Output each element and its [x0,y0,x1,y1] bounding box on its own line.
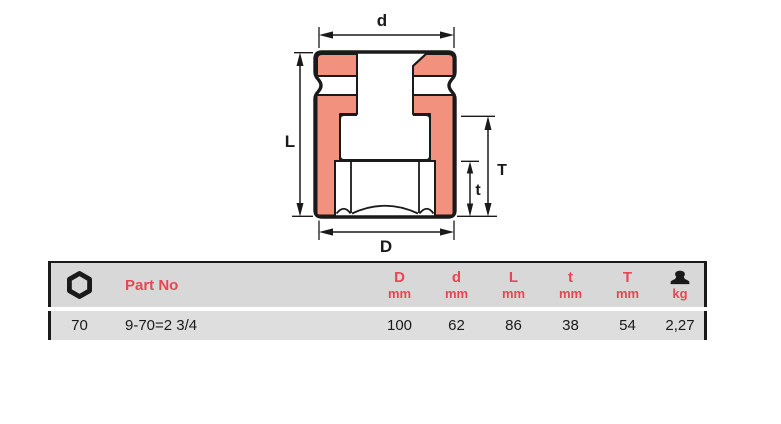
column-unit-T: mm [616,286,639,301]
column-dim-T: T [623,269,632,286]
cell-size: 70 [51,317,108,334]
weight-column-header: kg [656,263,704,307]
size-column-header [51,263,108,307]
cell-part-no: 9-70=2 3/4 [108,317,371,334]
column-header-t: t mm [542,263,599,307]
dim-label-T: T [497,162,507,179]
cell-d: 62 [428,317,485,334]
column-unit-D: mm [388,286,411,301]
dim-label-L: L [285,132,295,151]
dim-label-D: D [380,237,392,256]
cell-weight: 2,27 [656,317,704,334]
column-header-T: T mm [599,263,656,307]
catalog-page: d L D T [0,0,781,424]
column-dim-d: d [452,269,461,286]
square-drive-recess [340,115,430,160]
dimension-T [457,116,497,217]
cell-L: 86 [485,317,542,334]
socket-cross-section-diagram: d L D T [0,0,781,260]
column-dim-L: L [509,269,518,286]
cell-T: 54 [599,317,656,334]
weight-unit-label: kg [672,286,687,301]
spec-table: Part No D mm d mm L mm t mm T mm [48,261,707,340]
column-header-d: d mm [428,263,485,307]
column-header-L: L mm [485,263,542,307]
dim-label-d: d [377,11,387,30]
spec-table-header: Part No D mm d mm L mm t mm T mm [48,261,707,307]
part-no-label: Part No [125,277,178,294]
weight-icon [669,270,691,285]
dim-label-t: t [475,182,481,199]
column-unit-d: mm [445,286,468,301]
column-unit-L: mm [502,286,525,301]
hex-socket-icon [67,271,92,299]
table-row: 70 9-70=2 3/4 100 62 86 38 54 2,27 [48,311,707,340]
hex-cavity-lines [335,161,435,215]
column-unit-t: mm [559,286,582,301]
column-dim-t: t [568,269,573,286]
cell-t: 38 [542,317,599,334]
part-no-column-header: Part No [108,263,371,307]
column-dim-D: D [394,269,405,286]
dimension-d [319,27,454,48]
cell-D: 100 [371,317,428,334]
column-header-D: D mm [371,263,428,307]
